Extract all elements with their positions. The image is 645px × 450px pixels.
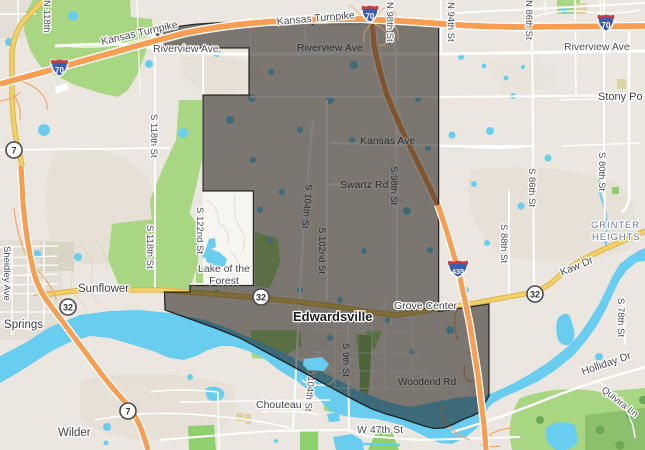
svg-text:Wilder: Wilder <box>58 427 91 439</box>
svg-text:Riverview Ave: Riverview Ave <box>153 43 219 55</box>
svg-text:Riverview Ave: Riverview Ave <box>564 41 630 53</box>
svg-text:70: 70 <box>366 12 375 21</box>
svg-text:32: 32 <box>256 293 266 303</box>
svg-text:HEIGHTS: HEIGHTS <box>592 232 641 243</box>
svg-text:Chouteau: Chouteau <box>256 399 302 411</box>
svg-text:S 118th St: S 118th St <box>148 114 159 158</box>
svg-text:32: 32 <box>63 303 73 313</box>
svg-text:S 78th St: S 78th St <box>615 298 626 337</box>
svg-text:32: 32 <box>530 290 540 300</box>
svg-text:Edwardsville: Edwardsville <box>293 309 372 324</box>
svg-text:W 47th St: W 47th St <box>357 424 403 436</box>
svg-text:S 122nd St: S 122nd St <box>194 207 205 254</box>
svg-text:Sheidley Ave: Sheidley Ave <box>1 246 12 301</box>
svg-text:S 88th St: S 88th St <box>498 224 509 263</box>
svg-text:Lake of the: Lake of the <box>198 263 250 275</box>
svg-text:70: 70 <box>602 21 611 30</box>
svg-text:S 86th St: S 86th St <box>526 168 537 207</box>
svg-text:Sunflower: Sunflower <box>78 283 129 295</box>
svg-text:r Springs: r Springs <box>0 319 43 331</box>
svg-text:S 80th St: S 80th St <box>596 152 607 191</box>
svg-text:70: 70 <box>55 66 64 75</box>
svg-text:7: 7 <box>11 146 16 156</box>
svg-text:N 94th St: N 94th St <box>445 2 456 42</box>
svg-text:Stony Po: Stony Po <box>598 91 643 103</box>
svg-text:N 86th St: N 86th St <box>523 0 534 40</box>
svg-text:GRINTER: GRINTER <box>591 220 640 231</box>
svg-text:N 98th St: N 98th St <box>384 2 395 42</box>
svg-text:7: 7 <box>125 407 130 417</box>
svg-text:N 118th: N 118th <box>41 0 52 33</box>
svg-text:Forest: Forest <box>209 275 239 287</box>
svg-text:Grove Center: Grove Center <box>394 300 458 312</box>
svg-text:435: 435 <box>452 267 465 276</box>
svg-text:S 118th St: S 118th St <box>144 225 155 269</box>
